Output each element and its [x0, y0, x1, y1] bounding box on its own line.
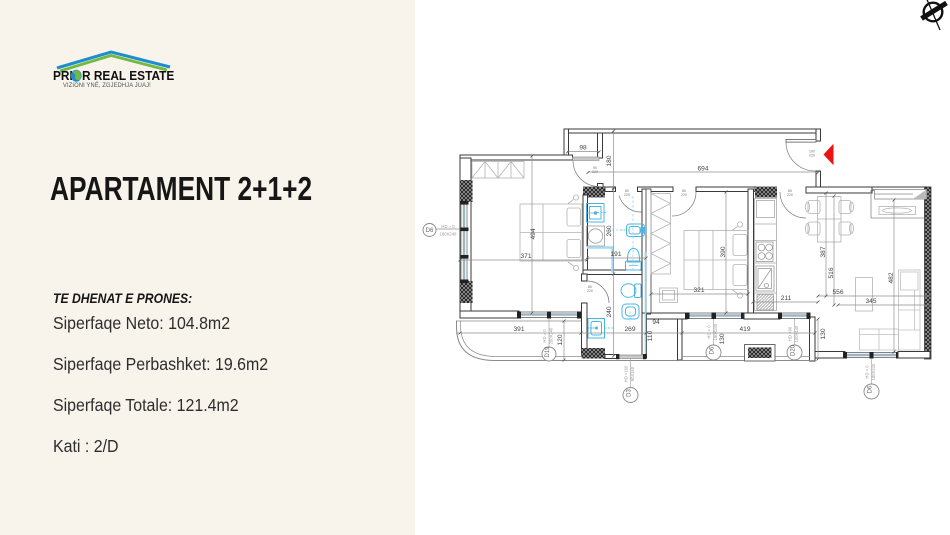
svg-text:HD =90: HD =90	[788, 326, 793, 341]
svg-text:110: 110	[647, 330, 654, 341]
svg-text:180X240: 180X240	[871, 363, 876, 380]
svg-text:321: 321	[693, 287, 704, 294]
svg-text:211: 211	[781, 295, 792, 302]
svg-text:516: 516	[828, 267, 835, 278]
svg-text:220: 220	[787, 193, 793, 197]
svg-text:220: 220	[624, 193, 630, 197]
svg-text:220: 220	[809, 154, 815, 158]
svg-text:98: 98	[579, 145, 587, 152]
svg-text:120: 120	[557, 334, 564, 345]
svg-text:D6: D6	[426, 228, 434, 234]
svg-text:180: 180	[606, 155, 613, 166]
svg-text:260: 260	[606, 225, 613, 236]
svg-text:494: 494	[530, 228, 537, 239]
svg-text:90X160: 90X160	[630, 366, 635, 381]
svg-text:180X240: 180X240	[713, 323, 718, 340]
svg-text:180X240: 180X240	[440, 232, 457, 237]
svg-text:419: 419	[739, 326, 750, 333]
svg-text:HD = 0: HD = 0	[542, 329, 547, 343]
svg-text:191: 191	[610, 251, 621, 258]
svg-text:D6: D6	[710, 346, 716, 354]
svg-text:D6: D6	[868, 385, 874, 393]
svg-text:130: 130	[820, 328, 827, 339]
svg-text:220: 220	[592, 170, 598, 174]
svg-text:100X140: 100X140	[794, 325, 799, 342]
svg-text:390: 390	[720, 246, 727, 257]
svg-text:HD = 0: HD = 0	[441, 224, 455, 229]
svg-text:556: 556	[832, 289, 843, 296]
svg-text:345: 345	[865, 298, 876, 305]
svg-text:482: 482	[888, 272, 895, 283]
svg-text:D3: D3	[627, 389, 633, 397]
svg-text:371: 371	[520, 253, 531, 260]
svg-text:130: 130	[719, 333, 726, 344]
svg-text:HD = 0: HD = 0	[865, 365, 870, 379]
svg-text:269: 269	[624, 326, 635, 333]
svg-text:391: 391	[513, 326, 524, 333]
svg-text:240: 240	[606, 306, 613, 317]
svg-text:694: 694	[697, 166, 708, 173]
svg-text:200X240: 200X240	[549, 327, 554, 344]
svg-text:94: 94	[652, 319, 660, 326]
svg-text:HD = 0: HD = 0	[707, 325, 712, 339]
svg-text:HD =160: HD =160	[624, 365, 629, 382]
svg-text:220: 220	[587, 289, 593, 293]
svg-text:D20: D20	[791, 344, 797, 356]
svg-text:220: 220	[681, 193, 687, 197]
svg-text:D19: D19	[545, 346, 551, 358]
svg-text:387: 387	[820, 246, 827, 257]
